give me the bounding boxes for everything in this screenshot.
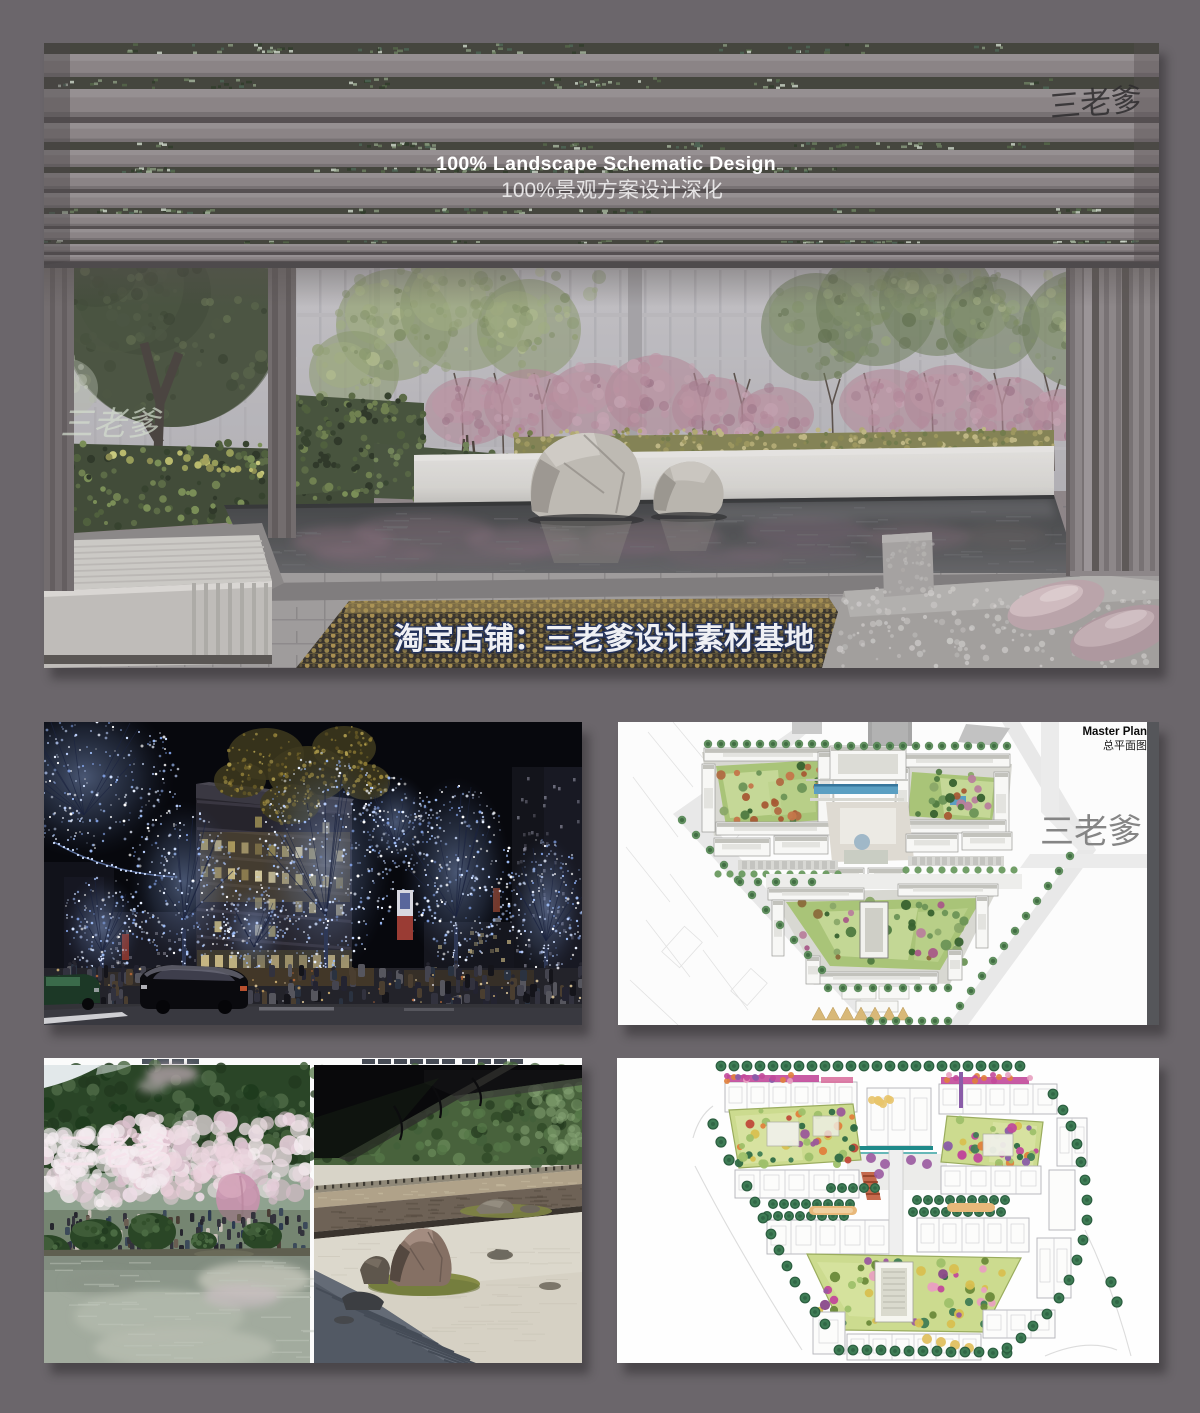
svg-text:三老爹: 三老爹 <box>60 407 163 443</box>
svg-text:100%景观方案设计深化: 100%景观方案设计深化 <box>501 179 723 202</box>
svg-text:100% Landscape Schematic Desig: 100% Landscape Schematic Design <box>436 153 776 175</box>
svg-text:淘宝店铺：三老爹设计素材基地: 淘宝店铺：三老爹设计素材基地 <box>394 622 814 656</box>
